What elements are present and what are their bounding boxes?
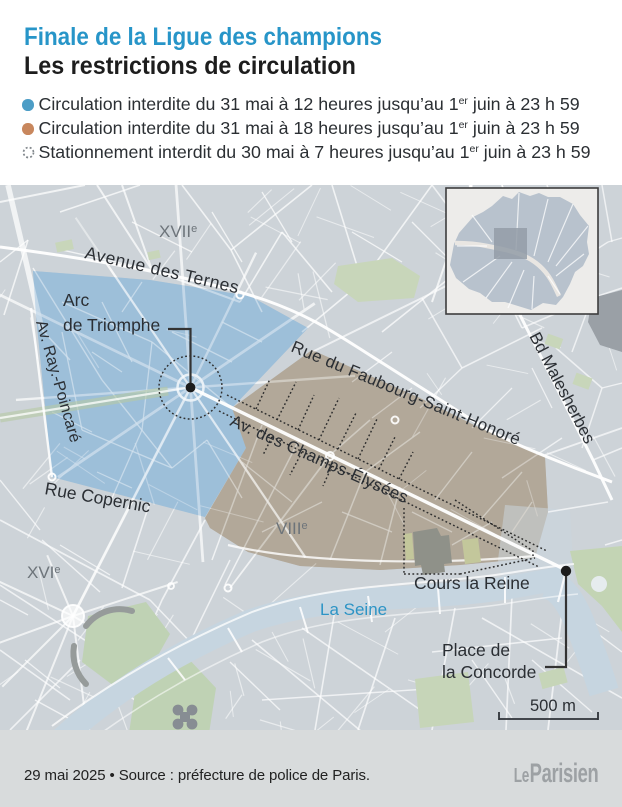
svg-text:la Concorde: la Concorde xyxy=(442,662,536,682)
svg-text:500 m: 500 m xyxy=(530,697,576,715)
svg-text:Arc: Arc xyxy=(63,290,90,310)
svg-text:La Seine: La Seine xyxy=(320,600,387,619)
svg-text:Place de: Place de xyxy=(442,640,510,660)
svg-text:Cours la Reine: Cours la Reine xyxy=(414,573,530,593)
svg-text:de Triomphe: de Triomphe xyxy=(63,315,160,335)
